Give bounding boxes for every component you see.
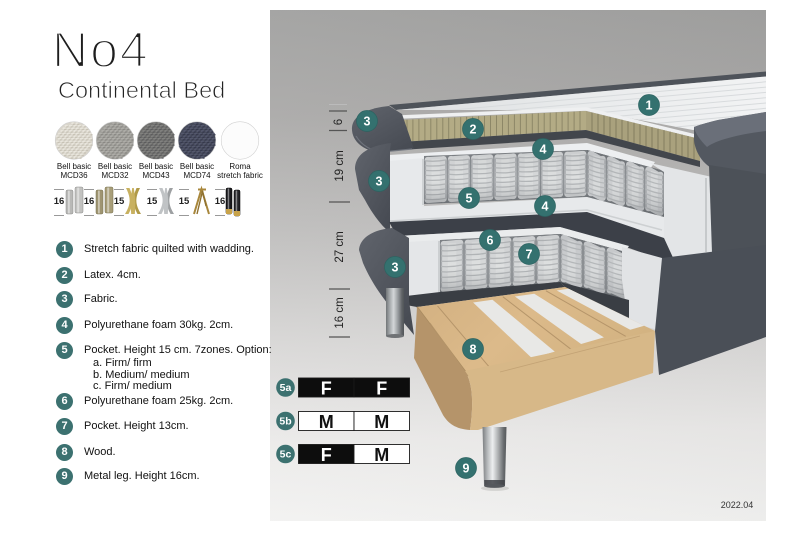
svg-text:16 cm: 16 cm (334, 297, 346, 328)
svg-text:M: M (319, 412, 334, 432)
svg-text:2022.04: 2022.04 (721, 500, 754, 510)
svg-text:19 cm: 19 cm (334, 150, 346, 181)
svg-text:4: 4 (542, 200, 549, 214)
svg-text:5c: 5c (280, 449, 292, 461)
svg-text:7: 7 (526, 248, 533, 262)
svg-text:1: 1 (646, 99, 653, 113)
svg-text:6: 6 (487, 234, 494, 248)
svg-text:F: F (321, 445, 332, 465)
svg-text:F: F (321, 379, 332, 399)
svg-text:M: M (374, 412, 389, 432)
svg-text:3: 3 (364, 115, 371, 129)
svg-text:15: 15 (179, 196, 190, 207)
svg-text:16: 16 (215, 196, 226, 207)
svg-text:5: 5 (466, 192, 473, 206)
svg-text:F: F (376, 379, 387, 399)
svg-text:3: 3 (376, 175, 383, 189)
svg-text:9: 9 (463, 462, 470, 476)
svg-text:16: 16 (84, 196, 95, 207)
svg-text:16: 16 (54, 196, 65, 207)
svg-text:27 cm: 27 cm (334, 231, 346, 262)
svg-text:8: 8 (470, 343, 477, 357)
svg-text:M: M (374, 445, 389, 465)
svg-text:6: 6 (333, 119, 345, 125)
svg-text:15: 15 (114, 196, 125, 207)
svg-text:2: 2 (470, 123, 477, 137)
svg-text:5b: 5b (279, 416, 291, 428)
svg-text:3: 3 (392, 261, 399, 275)
svg-text:4: 4 (540, 143, 547, 157)
svg-text:5a: 5a (280, 382, 292, 394)
svg-text:15: 15 (147, 196, 158, 207)
